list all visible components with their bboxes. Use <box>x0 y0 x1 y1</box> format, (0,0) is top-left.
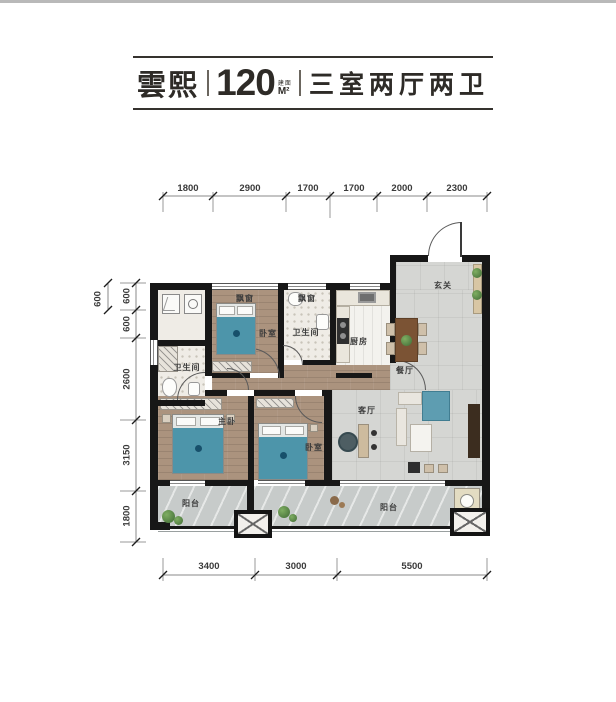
room-label-bath-mid: 卫生间 <box>293 327 320 338</box>
bed-icon <box>258 423 308 480</box>
plant-icon <box>174 516 183 525</box>
stool <box>438 464 448 473</box>
plant-icon <box>289 514 297 522</box>
room-label-bay2: 飘窗 <box>298 293 316 304</box>
toilet-icon <box>162 378 177 397</box>
pot-icon <box>339 502 345 508</box>
stool <box>408 462 420 473</box>
stool-small <box>371 444 377 450</box>
stool-small <box>371 430 377 436</box>
bay-window-2 <box>288 283 326 290</box>
wall <box>305 480 340 486</box>
wall <box>248 396 254 480</box>
coffee-table <box>410 424 432 452</box>
wall <box>158 480 170 486</box>
stool <box>424 464 434 473</box>
dim-top-2: 2900 <box>239 183 260 194</box>
dining-chair <box>418 323 427 336</box>
dining-chair <box>386 323 395 336</box>
wall <box>205 290 212 376</box>
nightstand <box>310 424 318 432</box>
wall <box>254 390 295 396</box>
dining-chair <box>418 342 427 355</box>
dim-left-4: 3150 <box>122 444 133 465</box>
bed-icon <box>172 414 224 474</box>
dim-top-5: 2000 <box>391 183 412 194</box>
wall <box>336 373 372 378</box>
room-label-bedroom-top: 卧室 <box>259 328 277 339</box>
kitchen-window <box>350 283 380 290</box>
floorplan: 飘窗 飘窗 卧室 卫生间 厨房 玄关 餐厅 卫生间 主卧 卧室 客厅 阳台 阳台 <box>150 228 490 546</box>
dim-bottom-3: 5500 <box>401 561 422 572</box>
master-balcony-door <box>170 480 205 486</box>
bathroom-window <box>150 340 158 365</box>
plant-icon <box>472 290 482 300</box>
ac-unit-icon <box>234 510 272 538</box>
plant-icon <box>472 268 482 278</box>
dim-left-outer: 600 <box>93 291 104 307</box>
room-label-kitchen: 厨房 <box>350 336 368 347</box>
wall-right <box>482 255 490 486</box>
bay-window-1 <box>212 283 278 290</box>
armchair <box>338 432 358 452</box>
wall <box>205 390 227 396</box>
bedroom-bottom-wardrobe <box>256 398 294 408</box>
floorplan-page: 雲熙 120 建面 M² 三室两厅两卫 <box>0 0 616 702</box>
washer-icon <box>162 294 180 314</box>
wall <box>445 480 482 486</box>
side-desk <box>358 424 369 458</box>
room-label-bedroom-bottom: 卧室 <box>305 442 323 453</box>
balcony-edge <box>158 526 482 529</box>
sofa-side <box>396 408 407 446</box>
wall <box>150 283 212 290</box>
wall <box>158 340 205 346</box>
wall <box>158 400 205 406</box>
room-label-bath-left: 卫生间 <box>174 362 201 373</box>
dryer-icon <box>184 294 202 314</box>
living-balcony-door <box>340 480 445 486</box>
room-label-balcony-left: 阳台 <box>182 498 200 509</box>
entry-door-leaf <box>460 222 462 257</box>
bed-icon <box>216 303 256 355</box>
bedroom-balcony-door <box>258 480 305 486</box>
room-label-foyer: 玄关 <box>434 280 452 291</box>
room-label-bay1: 飘窗 <box>236 293 254 304</box>
dining-chair <box>386 342 395 355</box>
balcony-railing <box>158 531 482 532</box>
dim-left-5: 1800 <box>122 505 133 526</box>
wall-left <box>150 283 158 340</box>
dim-top-6: 2300 <box>446 183 467 194</box>
room-label-living: 客厅 <box>358 405 376 416</box>
wall <box>396 255 428 262</box>
room-label-master: 主卧 <box>218 416 236 427</box>
wall-left <box>150 365 158 486</box>
balcony-right-floor <box>254 486 482 526</box>
dim-top-1: 1800 <box>177 183 198 194</box>
room-label-balcony-right: 阳台 <box>380 502 398 513</box>
tv-cabinet <box>468 404 480 458</box>
wall <box>324 396 332 480</box>
sofa-back <box>398 392 422 405</box>
dim-top-4: 1700 <box>343 183 364 194</box>
room-label-dining: 餐厅 <box>396 365 414 376</box>
dim-left-3: 2600 <box>122 368 133 389</box>
pot-icon <box>330 496 339 505</box>
ac-unit-icon <box>450 508 490 536</box>
kitchen-sink <box>358 292 376 303</box>
plant-icon <box>401 335 412 346</box>
entry-door-arc <box>428 222 462 256</box>
dim-bottom-2: 3000 <box>285 561 306 572</box>
sink-icon <box>188 382 200 396</box>
sofa-chaise <box>422 391 450 421</box>
dim-left-2: 600 <box>122 316 133 332</box>
dim-bottom-1: 3400 <box>198 561 219 572</box>
wall <box>205 480 247 486</box>
dim-top-3: 1700 <box>297 183 318 194</box>
dim-left-1: 600 <box>122 288 133 304</box>
nightstand <box>162 414 171 423</box>
wall <box>278 283 288 290</box>
stove-icon <box>337 318 349 344</box>
wall <box>326 283 350 290</box>
